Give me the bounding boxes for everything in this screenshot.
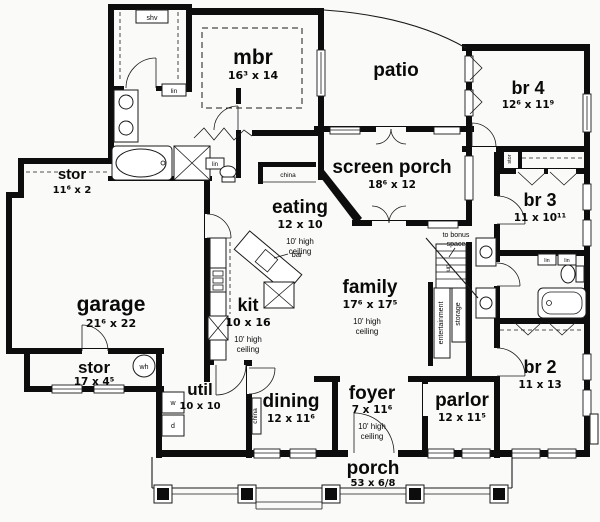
floor-plan-page: shv stor 11⁶ x 2 mbr 16³ x 14 patio br 4… xyxy=(0,0,600,522)
sink-icon xyxy=(480,297,492,309)
label-china-cabinet: china xyxy=(280,172,296,179)
label-br4: br 4 xyxy=(511,78,544,98)
label-parlor: parlor xyxy=(435,390,489,411)
dims-parlor: 12 x 11⁵ xyxy=(438,412,486,424)
label-bar: bar xyxy=(292,250,303,259)
label-stor-lower: stor xyxy=(78,358,111,377)
dims-garage: 21⁶ x 22 xyxy=(86,317,136,330)
label-up: up xyxy=(445,264,452,272)
dims-mbr: 16³ x 14 xyxy=(228,69,279,82)
note-kit-1: 10' high xyxy=(234,335,262,344)
label-family: family xyxy=(343,277,398,298)
label-porch: porch xyxy=(347,458,400,479)
label-lin: lin xyxy=(171,88,178,95)
label-washer: w xyxy=(169,400,176,407)
label-water-heater: wh xyxy=(139,364,149,371)
label-garage: garage xyxy=(77,293,146,316)
paper-background xyxy=(0,0,600,522)
note-foyer-1: 10' high xyxy=(358,422,386,431)
label-screen-porch: screen porch xyxy=(332,157,451,178)
label-lin: lin xyxy=(564,258,570,264)
label-dryer: d xyxy=(171,423,175,430)
label-dining: dining xyxy=(263,391,320,412)
side-stoop xyxy=(590,414,598,444)
dims-stor-upper: 11⁶ x 2 xyxy=(53,185,92,196)
label-entertainment: entertainment xyxy=(438,302,445,345)
dims-screen-porch: 18⁶ x 12 xyxy=(368,179,416,191)
pedestal-sink xyxy=(220,166,236,178)
sink-icon xyxy=(119,121,133,135)
label-util: util xyxy=(187,380,213,399)
label-stor-closet: stor xyxy=(507,154,513,163)
double-oven xyxy=(210,268,226,292)
label-mbr: mbr xyxy=(233,46,273,69)
note-family-2: ceiling xyxy=(356,327,379,336)
note-foyer-2: ceiling xyxy=(361,432,384,441)
kitchen-counter xyxy=(210,238,226,360)
floor-plan-drawing: shv stor 11⁶ x 2 mbr 16³ x 14 patio br 4… xyxy=(0,0,600,522)
dims-util: 10 x 10 xyxy=(179,401,220,412)
note-family-1: 10' high xyxy=(353,317,381,326)
sink-icon xyxy=(119,95,133,109)
label-eating: eating xyxy=(272,197,328,218)
label-foyer: foyer xyxy=(349,383,396,404)
label-lin: lin xyxy=(212,162,218,168)
dims-dining: 12 x 11⁶ xyxy=(267,413,315,425)
dims-br4: 12⁶ x 11⁹ xyxy=(502,99,555,111)
dims-eating: 12 x 10 xyxy=(277,218,323,231)
label-to-bonus-1: to bonus xyxy=(443,232,470,239)
tub-fixture xyxy=(538,288,586,318)
dims-kit: 10 x 16 xyxy=(225,316,271,329)
label-stor-upper: stor xyxy=(58,166,87,183)
dims-porch: 53 x 6/8 xyxy=(351,478,396,489)
dims-family: 17⁶ x 17⁵ xyxy=(342,298,397,311)
label-br3: br 3 xyxy=(523,190,556,210)
label-storage: storage xyxy=(455,302,462,325)
dims-br3: 11 x 10¹¹ xyxy=(514,212,567,224)
label-china-hutch: china xyxy=(252,408,259,424)
toilet-icon xyxy=(561,265,575,283)
label-lin: lin xyxy=(544,258,550,264)
dims-br2: 11 x 13 xyxy=(518,379,561,391)
sink-icon xyxy=(480,246,492,258)
note-kit-2: ceiling xyxy=(237,345,260,354)
toilet-tank xyxy=(576,266,584,282)
label-kit: kit xyxy=(237,295,258,315)
label-shv: shv xyxy=(147,15,158,22)
dims-foyer: 7 x 11⁶ xyxy=(352,404,393,416)
label-patio: patio xyxy=(373,60,418,81)
label-br2: br 2 xyxy=(523,357,556,377)
label-to-bonus-2: space xyxy=(447,241,466,248)
note-eating-1: 10' high xyxy=(286,237,314,246)
dims-stor-lower: 17 x 4⁵ xyxy=(74,376,115,388)
